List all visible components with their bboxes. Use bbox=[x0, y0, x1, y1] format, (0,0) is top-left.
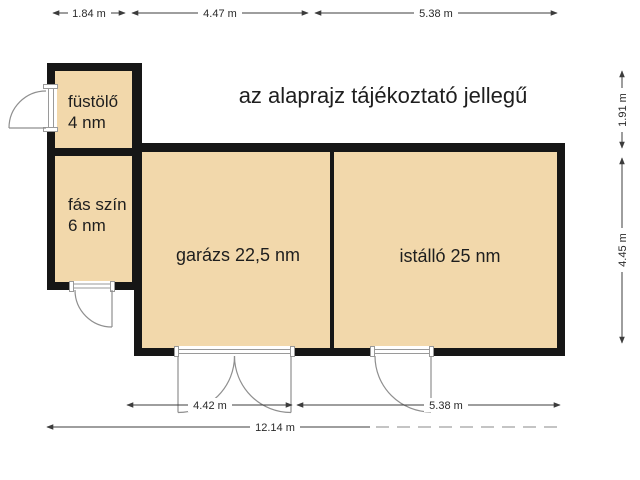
room-label-fas-szin-area: 6 nm bbox=[68, 216, 106, 235]
door-cap bbox=[70, 282, 74, 292]
door-cap bbox=[175, 347, 179, 357]
door-cap bbox=[371, 347, 375, 357]
room-label-fustolo-name: füstölő bbox=[68, 92, 118, 111]
dim-label-right-upper-group: 1.91 m bbox=[615, 88, 629, 132]
door-swing-arc bbox=[375, 356, 431, 412]
dim-label-top-left: 1.84 m bbox=[72, 8, 106, 20]
dim-label-top-right: 5.38 m bbox=[419, 8, 453, 20]
door-gap bbox=[72, 281, 112, 292]
door-gap bbox=[373, 346, 431, 357]
door-fustolo bbox=[9, 85, 58, 132]
door-cap bbox=[291, 347, 295, 357]
door-swing-arc bbox=[9, 91, 46, 128]
dim-label-right-upper: 1.91 m bbox=[617, 93, 629, 127]
door-cap bbox=[44, 85, 58, 89]
dim-label-right-lower: 4.45 m bbox=[617, 233, 629, 267]
dim-label-bottom-garage: 4.42 m bbox=[193, 400, 227, 412]
door-swing-arc bbox=[75, 290, 112, 327]
room-label-fustolo-area: 4 nm bbox=[68, 113, 106, 132]
room-label-garazs: garázs 22,5 nm bbox=[176, 245, 300, 265]
page-title: az alaprajz tájékoztató jellegű bbox=[239, 83, 528, 108]
dim-label-bottom-stable: 5.38 m bbox=[429, 400, 463, 412]
door-gap bbox=[45, 88, 57, 128]
door-cap bbox=[430, 347, 434, 357]
door-fas-szin bbox=[70, 281, 115, 327]
dim-label-top-middle: 4.47 m bbox=[203, 8, 237, 20]
rooms bbox=[55, 71, 557, 348]
floorplan-page: 1.84 m 4.47 m 5.38 m 1.91 m 4.45 m 4.42 … bbox=[0, 0, 640, 480]
door-swing-arc bbox=[235, 356, 292, 413]
room-label-fas-szin-name: fás szín bbox=[68, 195, 127, 214]
floorplan-svg: 1.84 m 4.47 m 5.38 m 1.91 m 4.45 m 4.42 … bbox=[0, 0, 640, 480]
dim-label-right-lower-group: 4.45 m bbox=[615, 228, 629, 272]
room-label-istallo: istálló 25 nm bbox=[399, 246, 500, 266]
door-gap bbox=[177, 346, 292, 357]
dim-label-bottom-total: 12.14 m bbox=[255, 422, 295, 434]
